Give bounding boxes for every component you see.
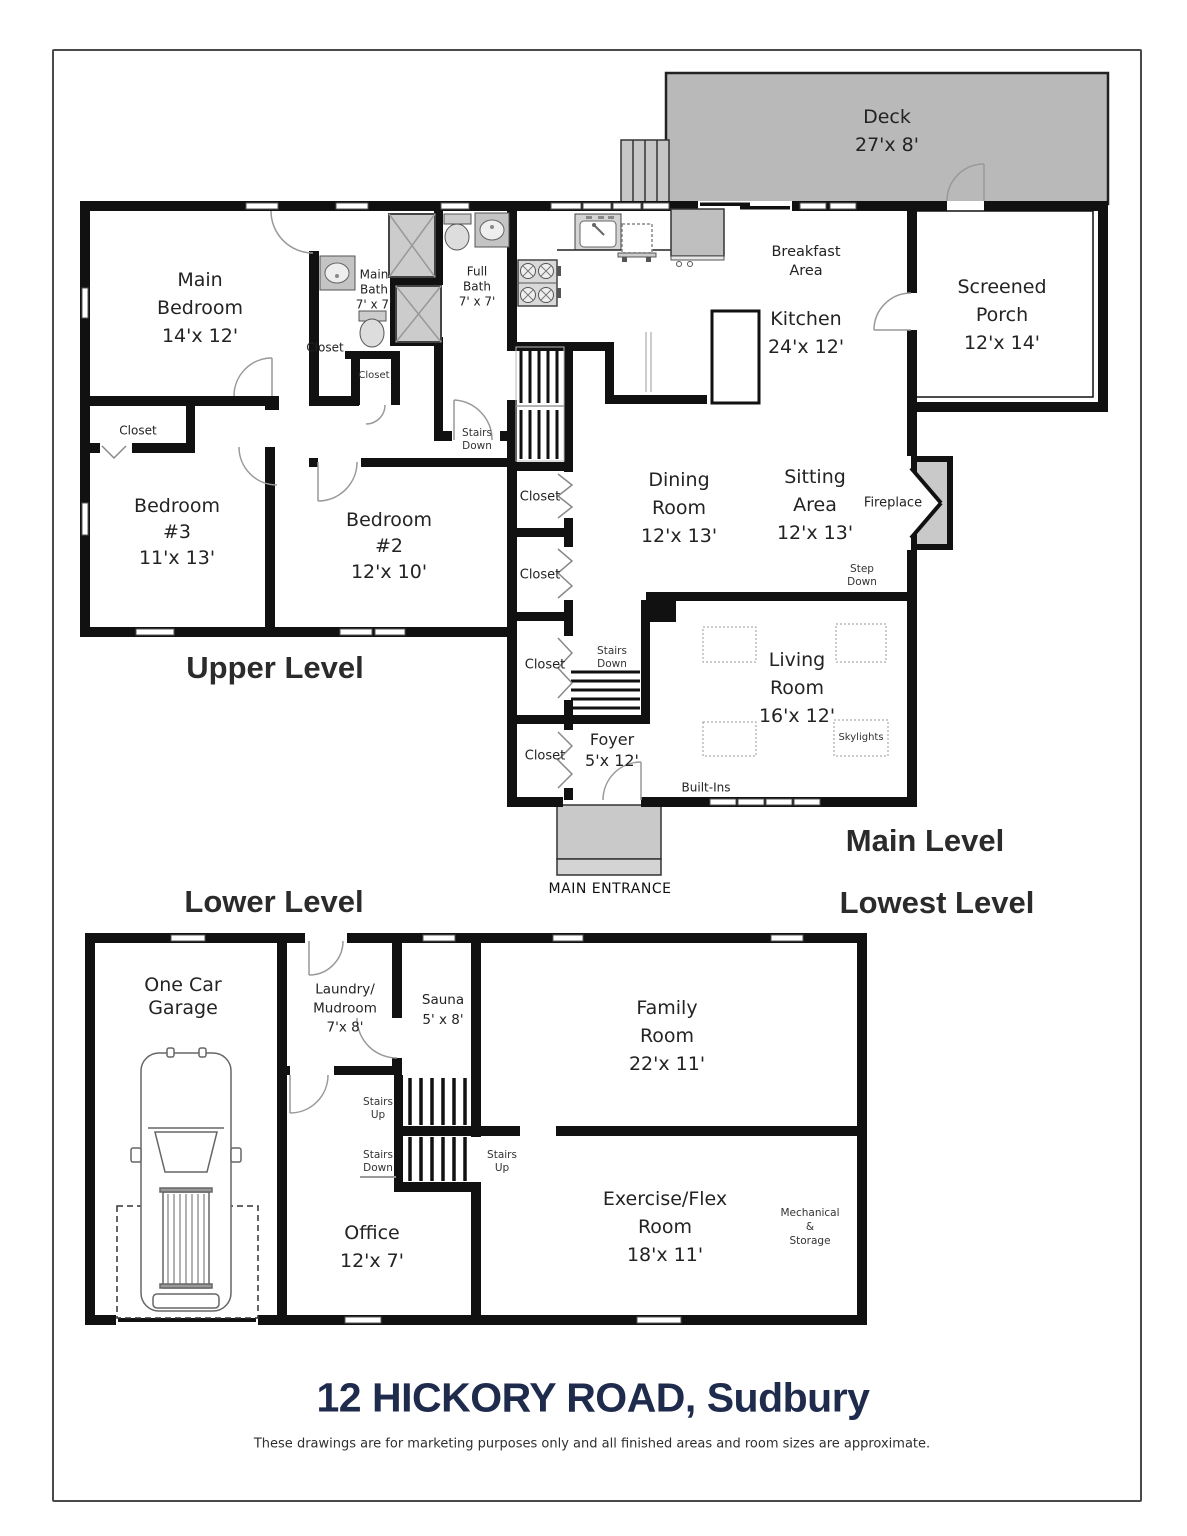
stairs-up-right-label: Stairs Up <box>487 1149 517 1175</box>
fireplace-label: Fireplace <box>864 496 922 511</box>
stairs-foyer <box>571 672 640 708</box>
closet-label-bath: Closet <box>358 370 389 382</box>
entry-porch-shape <box>557 805 661 875</box>
main-level-label: Main Level <box>846 823 1005 859</box>
page-title: 12 HICKORY ROAD, Sudbury <box>317 1375 870 1422</box>
stairs-down-upper-label: Stairs Down <box>462 427 492 453</box>
full-bath-label: Full Bath 7' x 7' <box>459 265 496 310</box>
closet-label-b3: Closet <box>119 424 156 439</box>
foyer-label: Foyer 5'x 12' <box>585 729 639 771</box>
laundry-mudroom-label: Laundry/ Mudroom 7'x 8' <box>313 981 377 1038</box>
main-entrance-label: MAIN ENTRANCE <box>549 881 672 897</box>
living-room-label: Living Room 16'x 12' <box>759 646 835 730</box>
main-bedroom-label: Main Bedroom 14'x 12' <box>157 266 243 350</box>
deck-label: Deck 27'x 8' <box>855 103 919 159</box>
closet-label-3: Closet <box>525 658 566 673</box>
car-icon <box>117 1048 258 1318</box>
kitchen-fixtures <box>518 209 759 403</box>
breakfast-area-label: Breakfast Area <box>771 243 840 281</box>
stairs-down-foyer-label: Stairs Down <box>597 645 627 671</box>
mechanical-storage-label: Mechanical & Storage <box>780 1206 839 1248</box>
office-label: Office 12'x 7' <box>340 1219 404 1275</box>
sauna-label: Sauna 5' x 8' <box>422 990 464 1030</box>
skylights-label: Skylights <box>838 732 883 744</box>
lowest-level-label: Lowest Level <box>840 885 1035 921</box>
bedroom-2-label: Bedroom #2 12'x 10' <box>346 507 432 585</box>
bedroom-3-label: Bedroom #3 11'x 13' <box>134 493 220 571</box>
disclaimer-text: These drawings are for marketing purpose… <box>254 1437 930 1452</box>
floor-plan-page: Deck 27'x 8' Screened Porch 12'x 14' Mai… <box>0 0 1187 1536</box>
closet-label-2: Closet <box>520 568 561 583</box>
screened-porch-label: Screened Porch 12'x 14' <box>957 273 1046 357</box>
stairs-down-lower-label: Stairs Down <box>363 1149 393 1175</box>
family-room-label: Family Room 22'x 11' <box>629 994 705 1078</box>
sitting-area-label: Sitting Area 12'x 13' <box>777 463 853 547</box>
stairs-central <box>516 347 564 461</box>
main-bath-label: Main Bath 7' x 7' <box>356 268 393 313</box>
closet-label-4: Closet <box>525 749 566 764</box>
stairs-up-left-label: Stairs Up <box>363 1096 393 1122</box>
laundry-top-door <box>305 933 347 943</box>
closet-label-mainbed: Closet <box>306 341 343 356</box>
exercise-flex-label: Exercise/Flex Room 18'x 11' <box>603 1185 727 1269</box>
dining-room-label: Dining Room 12'x 13' <box>641 466 717 550</box>
step-down-label: Step Down <box>847 563 877 589</box>
kitchen-label: Kitchen 24'x 12' <box>768 305 844 361</box>
lower-level-label: Lower Level <box>184 884 363 920</box>
garage-label: One Car Garage <box>144 974 221 1020</box>
upper-level-label: Upper Level <box>186 650 363 686</box>
closet-label-1: Closet <box>520 490 561 505</box>
built-ins-label: Built-Ins <box>682 781 731 796</box>
